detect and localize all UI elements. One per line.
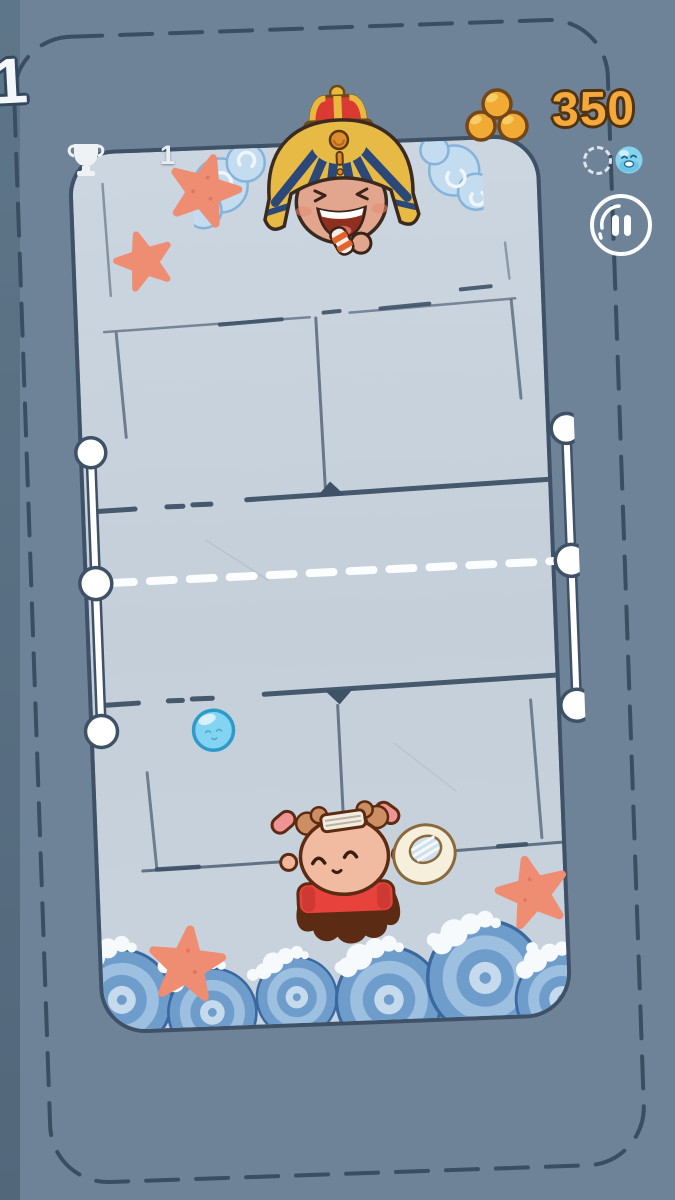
player-character[interactable] — [258, 778, 464, 956]
trophy-icon — [64, 140, 108, 180]
pharaoh-opponent — [237, 76, 444, 274]
bubble-ball — [190, 706, 238, 754]
starfish — [493, 853, 574, 934]
trophy-count: 1 — [160, 140, 175, 171]
screen-edge-shade — [0, 0, 20, 1200]
coins-icon — [464, 88, 532, 146]
play-area[interactable] — [67, 133, 573, 1034]
pause-button[interactable] — [588, 192, 654, 258]
score-value: 350 — [552, 81, 636, 137]
game-stage: 1 1 350 — [0, 0, 675, 1200]
dashed-circle-icon — [583, 146, 612, 175]
ball-face-icon — [614, 145, 644, 175]
level-number: 1 — [0, 43, 30, 119]
pause-icon — [612, 215, 631, 236]
